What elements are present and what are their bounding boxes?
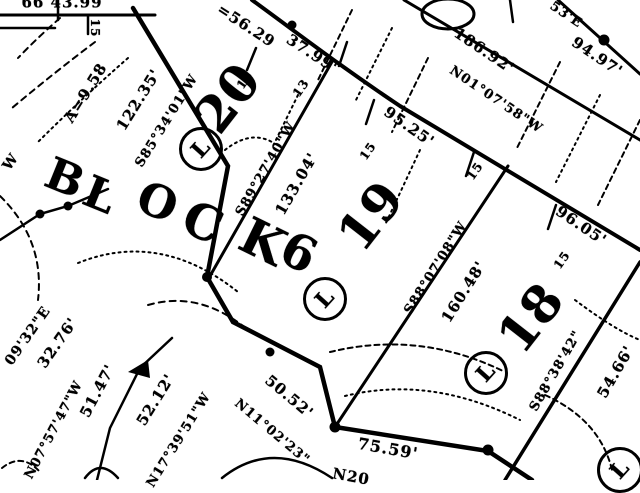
lot-marker-letter: L <box>607 457 634 483</box>
lot-marker-circle: L <box>179 127 223 171</box>
lot-number: 19 <box>329 172 412 259</box>
bearing-distance-label: 52.12' <box>134 372 177 429</box>
bearing-distance-label: 94.97' <box>569 35 625 80</box>
bearing-distance-label: 15 <box>465 160 486 182</box>
lot-marker-circle: L <box>464 351 508 395</box>
lot-marker-circle: L <box>597 447 640 493</box>
bearing-distance-label: 53'E <box>547 0 584 30</box>
bearing-distance-label: =56.29 <box>214 2 277 50</box>
block-name-letter: O <box>131 174 185 231</box>
bearing-distance-label: 160.48' <box>439 259 488 325</box>
lot-marker-circle: L <box>303 277 347 321</box>
bearing-distance-label: 15 <box>358 140 379 162</box>
bearing-distance-label: N01°07'58"W <box>447 64 545 136</box>
bearing-distance-label: 133.04' <box>273 150 320 217</box>
bearing-distance-label: 75.59' <box>357 436 420 462</box>
bearing-distance-label: 15 <box>89 19 101 38</box>
block-name-letter: C <box>175 193 230 253</box>
lot-marker-letter: L <box>188 136 215 162</box>
bearing-distance-label: 96.05' <box>553 204 609 249</box>
lot-marker-letter: L <box>473 360 500 386</box>
bearing-distance-label: 37.99' <box>284 32 340 76</box>
map-labels: 66 43.9915A=9.58122.35'S85°34'01"W=56.29… <box>0 0 640 480</box>
bearing-distance-label: 13 <box>291 77 312 99</box>
bearing-distance-label: 50.52' <box>262 373 316 421</box>
bearing-distance-label: N07°57'47"W <box>23 379 86 481</box>
bearing-distance-label: A=9.58 <box>62 61 110 126</box>
bearing-distance-label: 95.25' <box>381 104 437 149</box>
bearing-distance-label: 15 <box>552 249 573 271</box>
bearing-distance-label: N20 <box>331 466 371 487</box>
plat-map: 66 43.9915A=9.58122.35'S85°34'01"W=56.29… <box>0 0 640 480</box>
bearing-distance-label: W <box>0 151 21 173</box>
bearing-distance-label: 51.47' <box>78 362 118 420</box>
lot-marker-letter: L <box>312 286 339 312</box>
bearing-distance-label: 66 43.99 <box>21 0 102 11</box>
bearing-distance-label: 54.66' <box>595 343 637 400</box>
